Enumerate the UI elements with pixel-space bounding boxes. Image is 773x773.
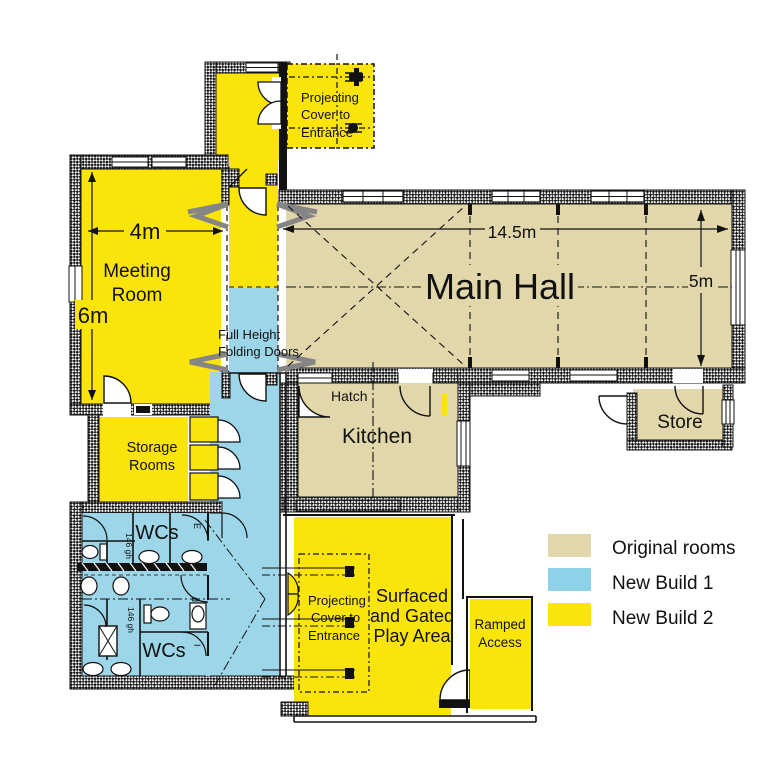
- svg-text:Folding Doors: Folding Doors: [218, 344, 299, 359]
- svg-text:WCs: WCs: [135, 522, 178, 544]
- svg-text:14.5m: 14.5m: [488, 222, 537, 242]
- svg-text:Store: Store: [657, 412, 702, 433]
- svg-text:Access: Access: [478, 635, 522, 650]
- svg-text:Original rooms: Original rooms: [612, 538, 736, 559]
- svg-text:Entrance: Entrance: [301, 125, 353, 140]
- svg-text:Rooms: Rooms: [129, 458, 175, 474]
- svg-text:Cover to: Cover to: [311, 610, 360, 625]
- svg-text:Room: Room: [112, 285, 163, 306]
- svg-text:I: I: [192, 644, 202, 647]
- svg-text:Projecting: Projecting: [308, 593, 366, 608]
- svg-text:New Build 1: New Build 1: [612, 573, 713, 594]
- svg-text:Storage: Storage: [127, 440, 178, 456]
- svg-text:Ramped: Ramped: [474, 617, 525, 632]
- svg-text:and Gated: and Gated: [370, 606, 454, 626]
- svg-text:Entrance: Entrance: [308, 628, 360, 643]
- svg-text:146 gh: 146 gh: [124, 533, 134, 559]
- svg-text:WCs: WCs: [142, 640, 185, 662]
- svg-text:New Build 2: New Build 2: [612, 608, 713, 629]
- svg-text:5m: 5m: [689, 271, 713, 291]
- svg-text:Surfaced: Surfaced: [376, 586, 448, 606]
- svg-text:E: E: [192, 523, 202, 529]
- svg-text:Main Hall: Main Hall: [425, 266, 575, 307]
- svg-text:146 gh: 146 gh: [126, 607, 136, 633]
- svg-text:Hatch: Hatch: [331, 388, 368, 404]
- svg-text:Meeting: Meeting: [103, 261, 171, 282]
- svg-text:Play Area: Play Area: [373, 626, 451, 646]
- svg-text:Kitchen: Kitchen: [342, 425, 412, 448]
- svg-text:d: d: [190, 597, 200, 602]
- svg-text:4m: 4m: [130, 219, 161, 244]
- svg-text:Projecting: Projecting: [301, 90, 359, 105]
- svg-text:6m: 6m: [78, 303, 109, 328]
- svg-text:Cover to: Cover to: [301, 107, 350, 122]
- svg-text:Full Height: Full Height: [218, 327, 281, 342]
